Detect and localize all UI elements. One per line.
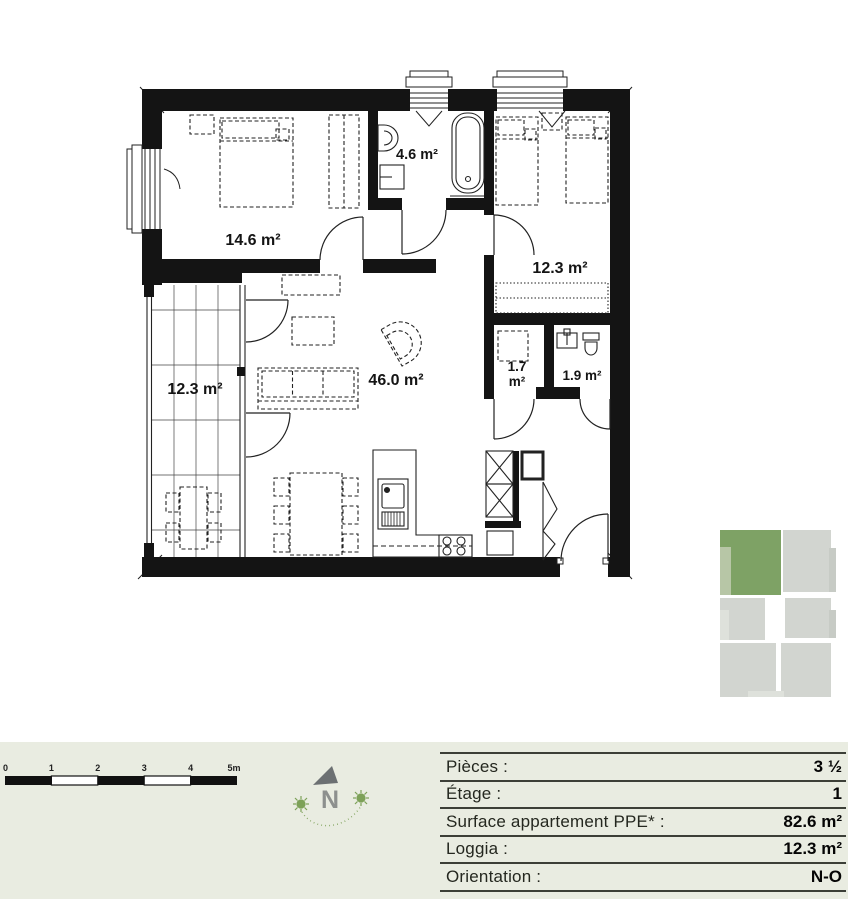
scale-tick: 2 bbox=[95, 763, 100, 773]
dining-set-living bbox=[274, 473, 358, 555]
toilet-tank-icon bbox=[583, 333, 599, 340]
door-loggia-lower bbox=[246, 413, 290, 457]
wall-reduit-south-a bbox=[484, 387, 494, 399]
bed-double-bedroom1 bbox=[220, 118, 293, 207]
kitchen bbox=[373, 450, 557, 560]
sun-icon bbox=[353, 790, 369, 806]
wall-reduit-wc-divider bbox=[544, 325, 554, 387]
wall-exterior-bottom-left bbox=[142, 557, 560, 577]
info-value: 1 bbox=[833, 784, 842, 804]
wall-bedroom2-bottom bbox=[484, 313, 610, 325]
scale-bar-segments bbox=[5, 776, 237, 785]
footer-band: 0 1 2 3 4 5m N bbox=[0, 742, 848, 899]
room-label-bedroom2: 12.3 m² bbox=[532, 260, 587, 277]
scale-bar: 0 1 2 3 4 5m bbox=[0, 758, 250, 802]
scale-tick: 5m bbox=[227, 763, 240, 773]
info-value: N-O bbox=[811, 867, 842, 887]
building-locator-map bbox=[718, 528, 846, 700]
window-opening-mark bbox=[416, 111, 442, 126]
floorplan-page: { "plan": { "rooms": [ {"id": "bedroom-1… bbox=[0, 0, 848, 899]
info-row-pieces: Pièces : 3 ½ bbox=[440, 754, 846, 782]
wall-kitchen-divider-h bbox=[485, 521, 521, 528]
door-reduit bbox=[494, 399, 534, 439]
entry-threshold bbox=[557, 557, 609, 577]
wall-exterior-bottom-right bbox=[608, 557, 630, 577]
building-locator-svg bbox=[718, 528, 846, 700]
compass: N bbox=[278, 756, 382, 840]
info-label: Loggia : bbox=[446, 839, 508, 859]
wall-bedroom2-left-lower bbox=[484, 255, 494, 313]
room-label-loggia: 12.3 m² bbox=[167, 381, 222, 398]
building-unit-highlighted-tab bbox=[720, 547, 731, 595]
info-label: Orientation : bbox=[446, 867, 541, 887]
bed-single-b-bedroom2 bbox=[566, 117, 608, 203]
info-label: Surface appartement PPE* : bbox=[446, 812, 665, 832]
door-bathroom bbox=[402, 210, 446, 254]
info-row-etage: Étage : 1 bbox=[440, 782, 846, 810]
north-arrow-icon bbox=[313, 766, 338, 785]
door-bedroom2 bbox=[494, 215, 534, 255]
room-label-bedroom1: 14.6 m² bbox=[225, 232, 280, 249]
info-row-orientation: Orientation : N-O bbox=[440, 864, 846, 892]
scale-tick: 1 bbox=[49, 763, 54, 773]
scale-bar-svg: 0 1 2 3 4 5m bbox=[0, 758, 250, 802]
wc-fixtures bbox=[557, 329, 599, 355]
wall-bathroom-bottom-b bbox=[446, 198, 484, 210]
scale-tick: 0 bbox=[3, 763, 8, 773]
building-unit-tab bbox=[829, 548, 836, 592]
wall-bathroom-bottom-a bbox=[368, 198, 402, 210]
floorplan-drawing: 14.6 m² 4.6 m² 12.3 m² 46.0 m² 1.7 m² 1.… bbox=[126, 67, 646, 589]
floorplan-svg: 14.6 m² 4.6 m² 12.3 m² 46.0 m² 1.7 m² 1.… bbox=[126, 67, 646, 589]
info-label: Étage : bbox=[446, 784, 501, 804]
sideboard-living bbox=[282, 275, 340, 295]
scale-tick: 3 bbox=[142, 763, 147, 773]
scale-bar-ticks: 0 1 2 3 4 5m bbox=[3, 763, 241, 773]
info-label: Pièces : bbox=[446, 757, 508, 777]
info-value: 12.3 m² bbox=[783, 839, 842, 859]
loggia-edge-cap-bottom bbox=[144, 543, 154, 557]
wall-kitchen-divider-v bbox=[513, 451, 519, 521]
room-label-living: 46.0 m² bbox=[368, 372, 423, 389]
loggia-edge-cap-top bbox=[144, 283, 154, 297]
window-top-bedroom2 bbox=[493, 71, 567, 127]
room-label-wc: 1.9 m² bbox=[562, 368, 602, 383]
loggia-door-handle bbox=[237, 367, 245, 376]
building-unit-tab bbox=[829, 610, 836, 638]
door-bedroom1 bbox=[320, 217, 363, 260]
building-unit bbox=[783, 530, 831, 592]
room-label-reduit-value: 1.7 bbox=[508, 359, 527, 374]
compass-north-label: N bbox=[321, 786, 339, 814]
building-unit bbox=[720, 643, 776, 697]
kitchen-cabinet-lower bbox=[487, 531, 513, 555]
wall-reduit-left bbox=[484, 325, 494, 387]
building-unit-tab bbox=[748, 691, 784, 697]
door-entry bbox=[561, 514, 608, 561]
kitchen-tall-unit-fridge bbox=[486, 451, 513, 517]
armchair-living bbox=[381, 314, 429, 366]
wall-bathroom-left bbox=[368, 111, 378, 198]
info-value: 82.6 m² bbox=[783, 812, 842, 832]
wall-bedroom1-bottom bbox=[142, 259, 320, 273]
window-top-bathroom bbox=[406, 71, 452, 126]
kitchen-cabinet-box bbox=[522, 452, 543, 479]
scale-tick: 4 bbox=[188, 763, 193, 773]
compass-svg: N bbox=[278, 756, 382, 840]
wall-wc-south bbox=[554, 387, 580, 399]
room-label-reduit-unit: m² bbox=[509, 374, 526, 389]
wall-reduit-south-b bbox=[536, 387, 554, 399]
washbasin-icon bbox=[378, 125, 398, 151]
kitchen-faucet bbox=[385, 488, 390, 493]
wall-corridor-south bbox=[363, 259, 436, 273]
wardrobe-bedroom1 bbox=[329, 115, 359, 208]
sofa-living bbox=[258, 368, 358, 409]
room-label-bathroom: 4.6 m² bbox=[396, 147, 438, 163]
nightstand-bedroom1 bbox=[190, 115, 214, 134]
wall-bedroom2-left-upper bbox=[484, 111, 494, 215]
shelf-reduit bbox=[498, 331, 528, 361]
door-wc bbox=[580, 399, 610, 429]
toilet-bowl-icon bbox=[585, 342, 597, 355]
building-unit-tab bbox=[720, 610, 729, 640]
info-row-loggia: Loggia : 12.3 m² bbox=[440, 837, 846, 865]
window-opening-mark bbox=[164, 169, 180, 189]
building-unit bbox=[785, 598, 831, 638]
wardrobe-bedroom2 bbox=[496, 283, 608, 313]
info-value: 3 ½ bbox=[814, 757, 842, 777]
bed-single-a-bedroom2 bbox=[496, 117, 538, 205]
building-unit bbox=[781, 643, 831, 697]
coffee-table-living bbox=[292, 317, 334, 345]
loggia bbox=[147, 285, 245, 557]
entry-closet-zigzag bbox=[543, 482, 557, 560]
wall-exterior-right bbox=[610, 89, 630, 577]
sun-icon bbox=[293, 796, 309, 812]
window-left-bedroom1 bbox=[127, 145, 180, 233]
apartment-info-table: Pièces : 3 ½ Étage : 1 Surface apparteme… bbox=[440, 752, 846, 892]
door-loggia-upper bbox=[246, 300, 288, 342]
info-row-surface: Surface appartement PPE* : 82.6 m² bbox=[440, 809, 846, 837]
